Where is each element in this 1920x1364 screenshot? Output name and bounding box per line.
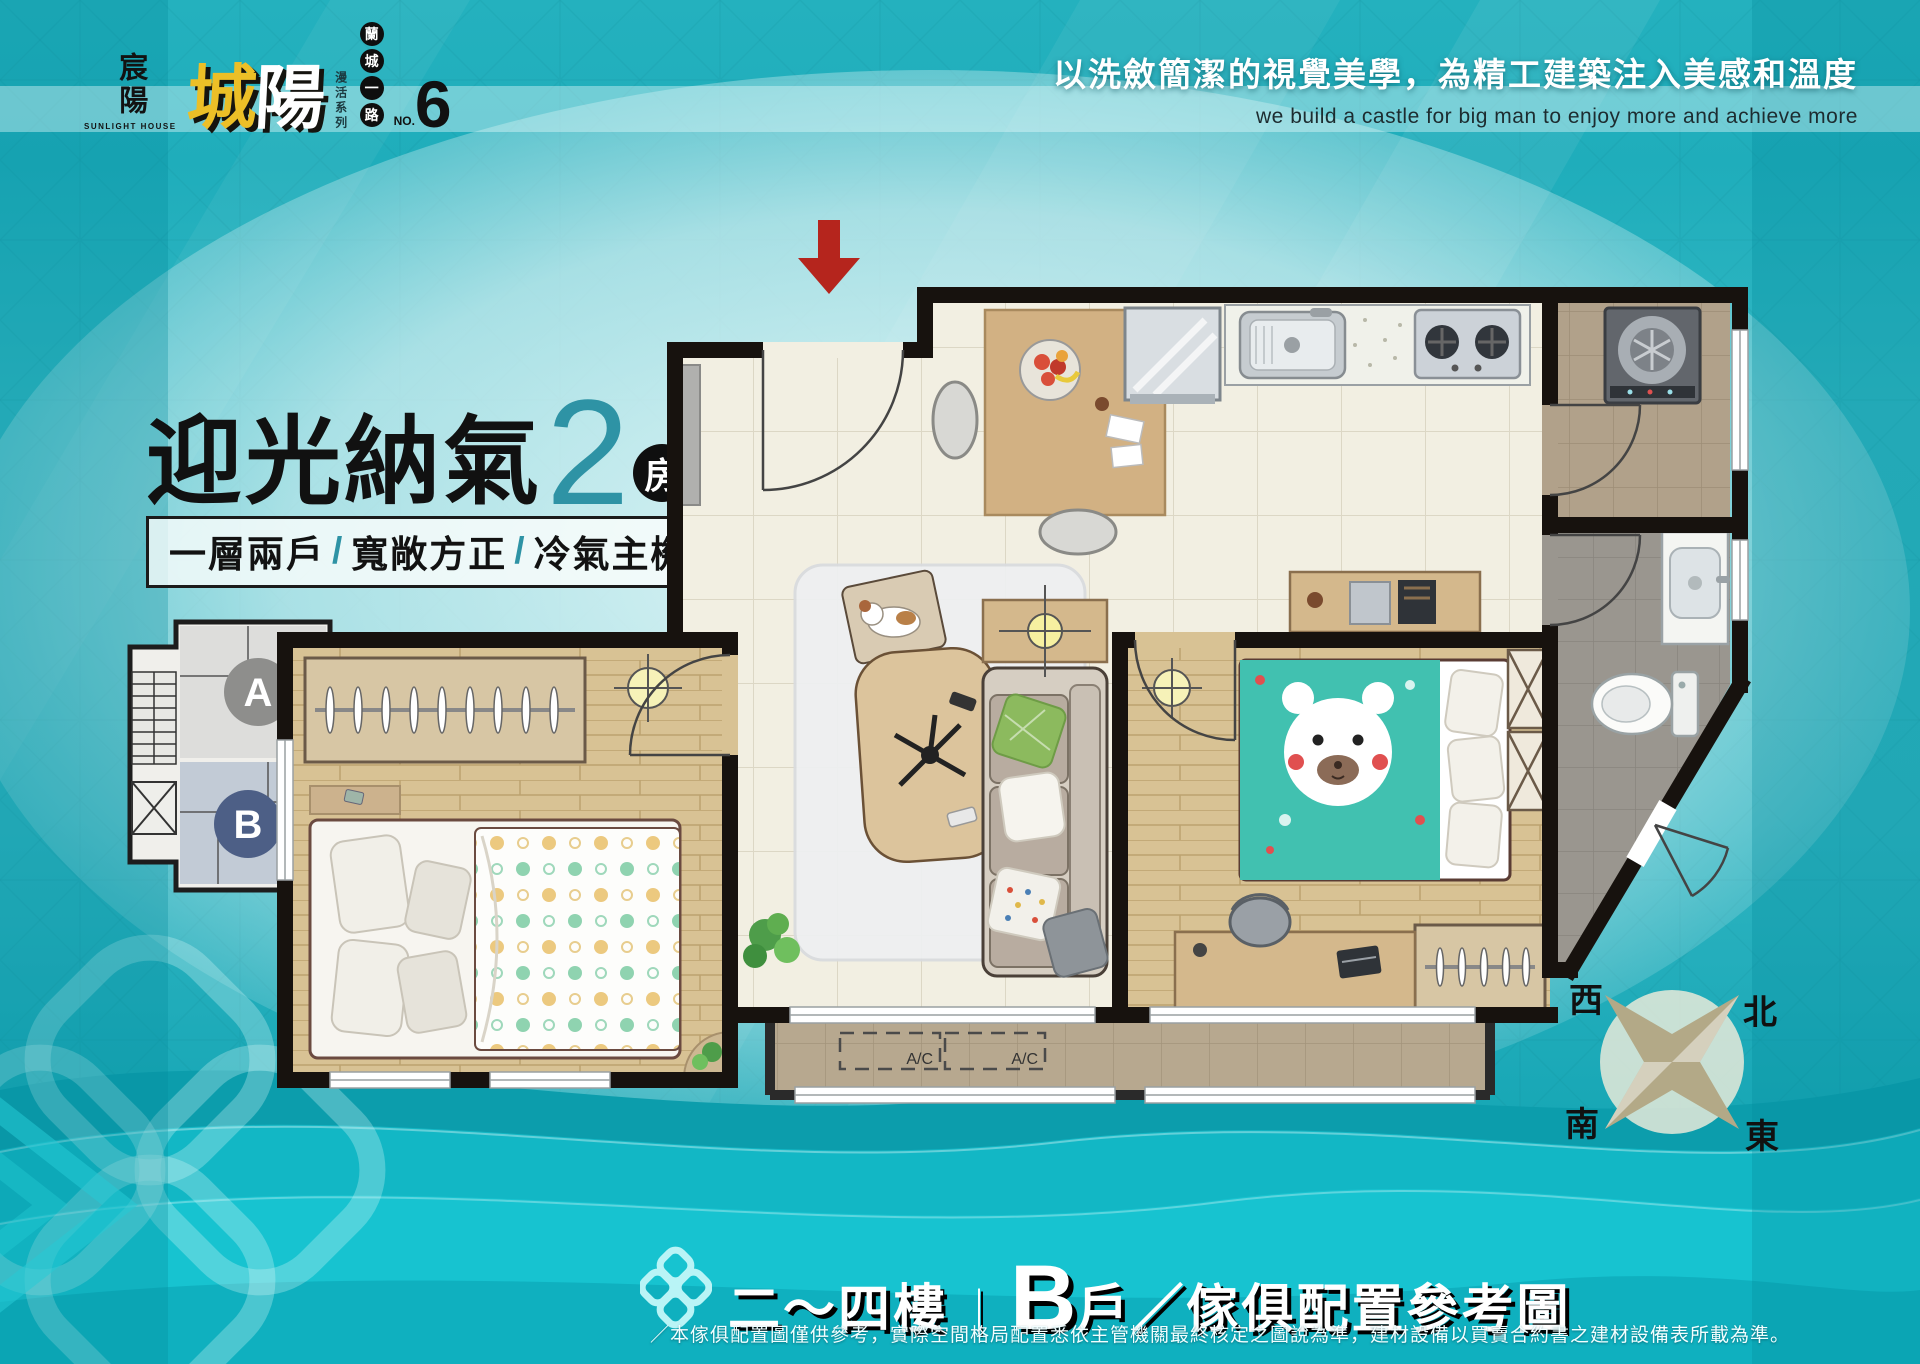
kitchen-sink bbox=[1240, 308, 1345, 378]
ac-label-1: A/C bbox=[906, 1051, 933, 1068]
compass-south: 南 bbox=[1565, 1106, 1599, 1144]
compass: 西 北 南 東 bbox=[1565, 982, 1779, 1156]
refrigerator bbox=[1125, 308, 1220, 404]
road-badge: 城 bbox=[360, 49, 384, 73]
bedroom2-hanger-wardrobe bbox=[1415, 925, 1545, 1009]
keyplan-elevator bbox=[132, 782, 176, 834]
road-badge: 蘭 bbox=[360, 22, 384, 46]
foyer-cabinet bbox=[682, 365, 700, 505]
compass-north: 北 bbox=[1743, 994, 1777, 1032]
bedroom2-bed bbox=[1240, 660, 1510, 880]
brand-series-label: 漫活系列 bbox=[333, 71, 350, 131]
washing-machine bbox=[1605, 308, 1700, 403]
poster-page: 宸陽 SUNLIGHT HOUSE 城陽 漫活系列 蘭 城 一 路 NO. 6 … bbox=[0, 0, 1920, 1364]
dining-chair bbox=[1040, 510, 1116, 554]
project-number-value: 6 bbox=[415, 78, 452, 131]
gas-stove bbox=[1415, 310, 1520, 378]
brand-logo: 宸陽 SUNLIGHT HOUSE 城陽 漫活系列 蘭 城 一 路 NO. 6 bbox=[84, 22, 452, 131]
bathroom-sink bbox=[1662, 532, 1730, 644]
tagline-chinese: 以洗斂簡潔的視覺美學，為精工建築注入美感和溫度 bbox=[1053, 48, 1858, 96]
brand-vertical-block: 宸陽 SUNLIGHT HOUSE bbox=[84, 52, 177, 131]
toilet bbox=[1592, 672, 1698, 736]
sofa bbox=[983, 668, 1110, 979]
footer-disclaimer: ／本傢俱配置圖僅供參考，實際空間格局配置悉依主管機關最終核定之圖說為準，建材設備… bbox=[650, 1320, 1790, 1347]
bedroom1-bed bbox=[310, 820, 680, 1058]
bedroom1-nightstand bbox=[310, 786, 400, 814]
brand-main-char-1: 城 bbox=[185, 59, 257, 137]
road-badge: 一 bbox=[360, 76, 384, 100]
road-badge-column: 蘭 城 一 路 bbox=[360, 22, 384, 127]
tagline-english: we build a castle for big man to enjoy m… bbox=[1053, 105, 1858, 129]
brand-vertical-name: 宸陽 bbox=[116, 52, 145, 118]
desk-chair bbox=[1230, 898, 1290, 946]
floorplan: A/C A/C bbox=[250, 180, 1800, 1200]
project-number-prefix: NO. bbox=[394, 117, 415, 127]
project-number: NO. 6 bbox=[394, 78, 452, 131]
pillow-white bbox=[998, 771, 1066, 843]
brand-main-char-2: 陽 bbox=[253, 59, 325, 137]
compass-east: 東 bbox=[1745, 1118, 1779, 1156]
ac-label-2: A/C bbox=[1011, 1051, 1038, 1068]
brand-main-name: 城陽 bbox=[185, 65, 324, 132]
keyplan-stairs bbox=[132, 672, 176, 764]
kitchen-counter bbox=[1225, 305, 1530, 385]
brand-vertical-sub: SUNLIGHT HOUSE bbox=[84, 122, 177, 131]
sofa-side-table bbox=[983, 585, 1107, 677]
compass-west: 西 bbox=[1569, 982, 1603, 1020]
entrance-arrow bbox=[798, 220, 860, 294]
hall-sideboard bbox=[1290, 572, 1480, 632]
road-badge: 路 bbox=[360, 103, 384, 127]
dining-chair bbox=[933, 382, 977, 458]
bedroom1-wardrobe bbox=[305, 658, 585, 762]
header-tagline: 以洗斂簡潔的視覺美學，為精工建築注入美感和溫度 we build a castl… bbox=[1053, 48, 1858, 129]
